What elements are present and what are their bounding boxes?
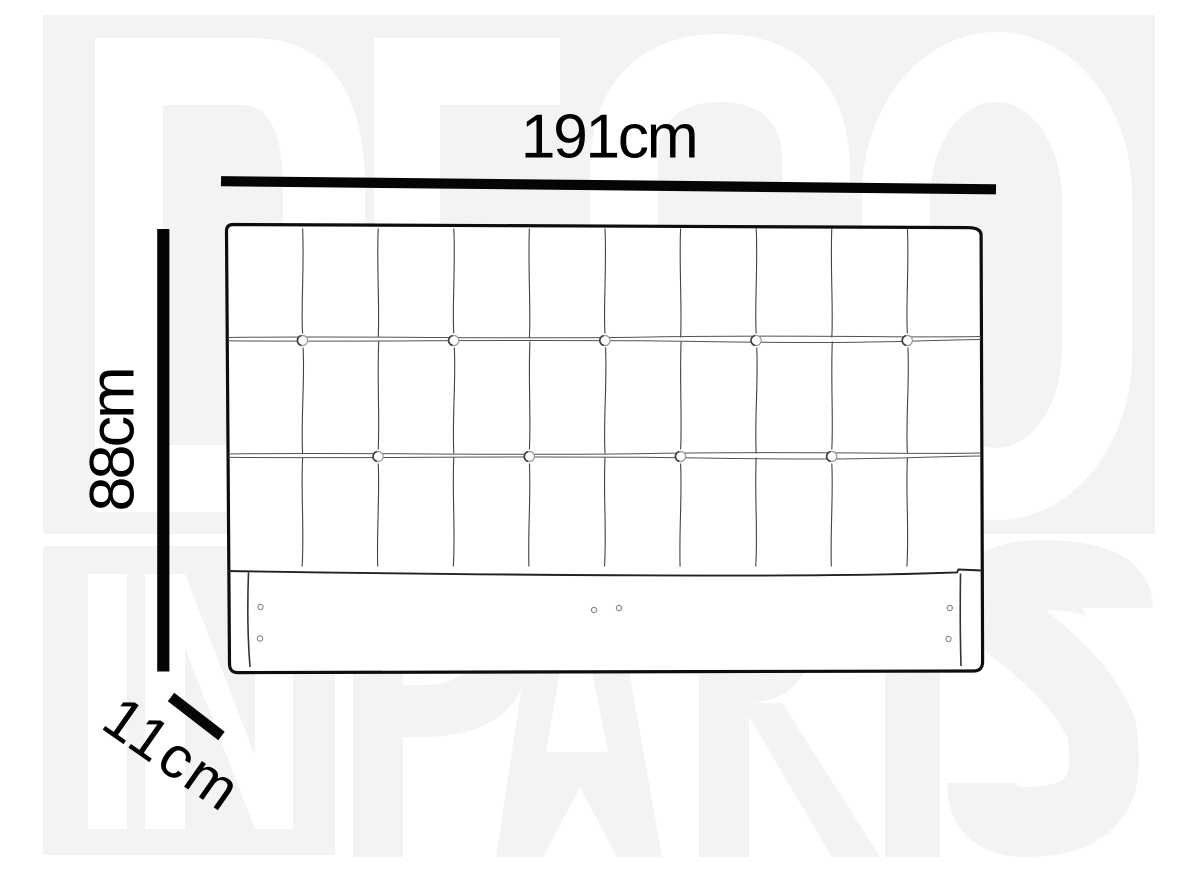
- svg-text:88cm: 88cm: [78, 369, 148, 511]
- svg-text:191cm: 191cm: [521, 102, 697, 172]
